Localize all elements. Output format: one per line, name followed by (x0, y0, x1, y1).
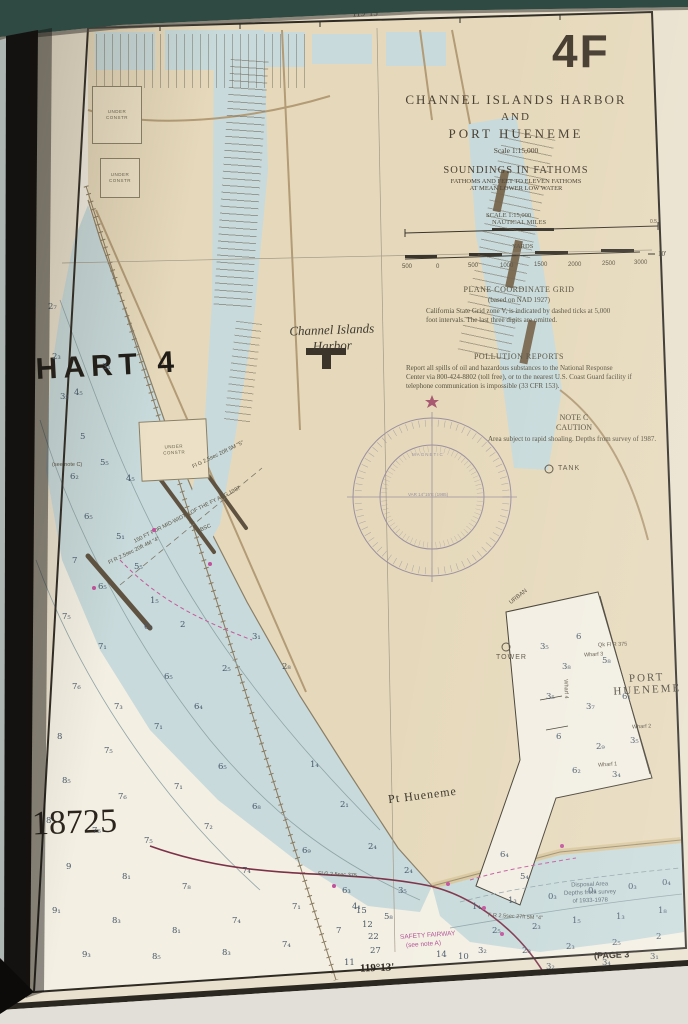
sounding: 1₅ (572, 916, 581, 926)
sounding: 7₆ (72, 682, 81, 692)
note-c-title: NOTE C (476, 413, 672, 422)
sounding: 7₆ (118, 792, 127, 802)
sounding: 9 (66, 862, 71, 872)
map-label: 0.5 (650, 219, 657, 225)
scalebar-tick-label: 2500 (602, 261, 615, 267)
sounding: 5₅ (100, 458, 109, 468)
sounding: 5₈ (384, 912, 393, 922)
sounding: 7₅ (144, 836, 153, 846)
map-label: (see note C) (52, 462, 82, 468)
sounding: 14 (436, 950, 447, 960)
scalebar-scale-label: SCALE 1:15,000 (486, 212, 531, 219)
sounding: 6₅ (218, 762, 227, 772)
marina-piers-north (96, 34, 306, 88)
sounding: 3₂ (546, 962, 555, 972)
scalebar-tick-label: 1500 (534, 262, 547, 268)
light-flare-icon (482, 906, 486, 910)
sounding: 7₃ (114, 702, 123, 712)
sounding: 11 (344, 958, 355, 968)
scalebar-tick-label: 500 (402, 264, 412, 270)
soundings-heading: SOUNDINGS IN FATHOMS (368, 165, 664, 176)
sounding: 0₃ (628, 882, 637, 892)
light-flare-icon (446, 882, 450, 886)
sounding: 3₅ (398, 886, 407, 896)
sounding: 2₅ (612, 938, 621, 948)
sounding: 0₃ (548, 892, 557, 902)
sounding: 5₁ (116, 532, 125, 542)
sounding: 2₄ (368, 842, 377, 852)
light-flare-icon (92, 586, 96, 590)
sounding: 1₄ (472, 902, 481, 912)
compass-magnetic-label: MAGNETIC (412, 452, 444, 457)
sounding: 7₆ (92, 826, 101, 836)
sounding: 3₅ (540, 642, 549, 652)
sounding: 3₁ (650, 952, 659, 962)
sounding: 8₃ (222, 948, 231, 958)
tower-label: TOWER (496, 654, 527, 661)
sounding: 3₅ (630, 736, 639, 746)
sounding: 6 (556, 732, 561, 742)
scalebar-tick-label: 1000 (500, 263, 513, 269)
under-constr-line2: CONSTR (101, 178, 139, 184)
sounding: 8 (57, 732, 62, 742)
plane-grid-body: California State Grid zone V, is indicat… (426, 307, 612, 326)
sounding: 4₅ (74, 388, 83, 398)
title-line2: AND (368, 111, 664, 123)
light-flare-icon (560, 844, 564, 848)
sounding: 4₅ (126, 474, 135, 484)
sounding: 7₄ (242, 866, 251, 876)
sounding: 1₄ (310, 760, 319, 770)
chart-page: UNDER CONSTR UNDER CONSTR UNDER CONSTR 4… (0, 0, 688, 1024)
sounding: 6 (576, 632, 581, 642)
sounding: 5₄ (520, 872, 529, 882)
scalebar-yards-label: YARDS (512, 243, 533, 250)
title-line1: CHANNEL ISLANDS HARBOR (368, 92, 664, 108)
sounding: 7₂ (204, 822, 213, 832)
sounding: 7₈ (182, 882, 191, 892)
port-hueneme-label: PORT HUENEME (607, 670, 686, 698)
scalebar-tick-label: 0 (436, 264, 439, 270)
sounding: 9₁ (52, 906, 61, 916)
map-label: Wharf 3 (584, 651, 604, 658)
under-construction-area-2: UNDER CONSTR (100, 158, 140, 198)
chart-corner-label: 4F (552, 24, 610, 78)
sounding: 3₁ (102, 362, 111, 372)
sounding: 12 (362, 920, 373, 930)
sounding: 2₈ (522, 946, 531, 956)
light-flare-icon (332, 884, 336, 888)
sounding: 6₂ (70, 472, 79, 482)
sounding: 1₅ (150, 596, 159, 606)
pollution-body: Report all spills of oil and hazardous s… (406, 364, 632, 391)
sounding: 6₈ (252, 802, 261, 812)
title-line3: PORT HUENEME (368, 126, 664, 142)
sounding: 3₁ (252, 632, 261, 642)
sounding: 1₃ (616, 912, 625, 922)
sounding: 3₇ (586, 702, 595, 712)
plane-grid-subtitle: (based on NAD 1927) (406, 296, 632, 304)
sounding: 6₄ (194, 702, 203, 712)
map-label: Qk Fl R 375 (598, 641, 628, 648)
chart-title-block: CHANNEL ISLANDS HARBOR AND PORT HUENEME … (368, 92, 664, 192)
sounding: 3₂ (478, 946, 487, 956)
tank-label: TANK (558, 465, 580, 472)
light-flare-icon (500, 932, 504, 936)
sounding: 6₃ (342, 886, 351, 896)
pollution-title: POLLUTION REPORTS (398, 352, 640, 361)
sounding: 5 (80, 432, 85, 442)
title-scale: Scale 1:15,000 (368, 146, 664, 155)
sounding: 7 (336, 926, 341, 936)
sounding: 0₁ (588, 886, 597, 896)
sounding: 6₅ (84, 512, 93, 522)
map-label: Wharf 4 (562, 679, 569, 698)
under-construction-area-3: UNDER CONSTR (138, 418, 209, 481)
sounding: 5₅ (134, 562, 143, 572)
sounding: 6₁ (622, 692, 631, 702)
plane-coordinate-grid-note: PLANE COORDINATE GRID (based on NAD 1927… (406, 285, 632, 326)
sounding: 1₈ (658, 906, 667, 916)
sounding: 6₅ (164, 672, 173, 682)
chart-number: 18725 (31, 803, 117, 844)
sounding: 8₃ (112, 916, 121, 926)
sounding: 7₅ (62, 612, 71, 622)
sounding: 2₃ (566, 942, 575, 952)
sounding: 8₅ (62, 776, 71, 786)
sounding: 2₃ (532, 922, 541, 932)
sounding: 8₁ (122, 872, 131, 882)
soundings-sub1: FATHOMS AND FEET TO ELEVEN FATHOMS (368, 178, 664, 185)
sounding: 2₃ (52, 352, 61, 362)
under-construction-area-1: UNDER CONSTR (92, 86, 142, 144)
sounding: 3₄ (602, 958, 611, 968)
note-c-caution: NOTE C CAUTION Area subject to rapid sho… (476, 413, 672, 444)
sounding: 2₅ (222, 664, 231, 674)
sounding: 6₄ (500, 850, 509, 860)
sounding: 0₄ (662, 878, 671, 888)
sounding: 7₁ (174, 782, 183, 792)
right-latitude-label: 10' (658, 250, 666, 258)
sounding: 7₄ (232, 916, 241, 926)
map-label: Wharf 2 (632, 723, 652, 730)
light-flare-icon (208, 562, 212, 566)
soundings-sub2: AT MEAN LOWER LOW WATER (368, 185, 664, 192)
sounding: 2₈ (282, 662, 291, 672)
bottom-longitude-label: 119°13' (360, 961, 395, 974)
sounding: 2₁ (340, 800, 349, 810)
light-flare-icon (152, 528, 156, 532)
sounding: 7₅ (104, 746, 113, 756)
sounding: 8₅ (152, 952, 161, 962)
channel-islands-harbor-label: Channel Islands Harbor (261, 320, 402, 357)
note-c-body: Area subject to rapid shoaling. Depths f… (488, 435, 660, 444)
sounding: 7₁ (292, 902, 301, 912)
sounding: 7₁ (98, 642, 107, 652)
sounding: 1₃ (508, 896, 517, 906)
scalebar-tick-label: 2000 (568, 262, 581, 268)
under-constr-line2: CONSTR (93, 115, 141, 121)
sounding: 7₁ (154, 722, 163, 732)
page-reference-label: (PAGE 3 (594, 949, 630, 960)
sounding: 2₄ (404, 866, 413, 876)
note-c-subtitle: CAUTION (476, 423, 672, 432)
sounding: 8₁ (172, 926, 181, 936)
plane-grid-title: PLANE COORDINATE GRID (406, 285, 632, 294)
sounding: 15 (356, 906, 367, 916)
compass-variation-label: VAR 14°15'E (1985) (408, 492, 448, 497)
sounding: 2₉ (596, 742, 605, 752)
photo-of-nautical-chart: { "colors":{"land":"#e6d9bb","shallow_wa… (0, 0, 688, 1024)
sounding: 3₈ (562, 662, 571, 672)
sounding: 6₉ (302, 846, 311, 856)
sounding: 3₄ (612, 770, 621, 780)
sounding: 6₂ (572, 766, 581, 776)
sounding: 5₈ (602, 656, 611, 666)
sounding: 7₄ (282, 940, 291, 950)
sounding: 6₃ (144, 622, 153, 632)
sounding: 2 (180, 620, 185, 630)
top-longitude-label: 119°15' (352, 8, 380, 19)
sounding: 7 (72, 556, 77, 566)
sounding: 9₃ (82, 950, 91, 960)
sounding: 2 (656, 932, 661, 942)
scalebar-miles-label: NAUTICAL MILES (492, 219, 546, 226)
sounding: 22 (368, 932, 379, 942)
sounding: 10 (458, 952, 469, 962)
sounding: 8 (46, 816, 51, 826)
scalebar-tick-label: 3000 (634, 260, 647, 266)
sounding: 6₅ (98, 582, 107, 592)
sounding: 2₇ (48, 302, 57, 312)
sounding: 3₅ (60, 392, 69, 402)
scalebar-tick-label: 500 (468, 263, 478, 269)
sounding: 27 (370, 946, 381, 956)
pollution-reports-note: POLLUTION REPORTS Report all spills of o… (398, 352, 640, 391)
sounding: 3₅ (546, 692, 555, 702)
